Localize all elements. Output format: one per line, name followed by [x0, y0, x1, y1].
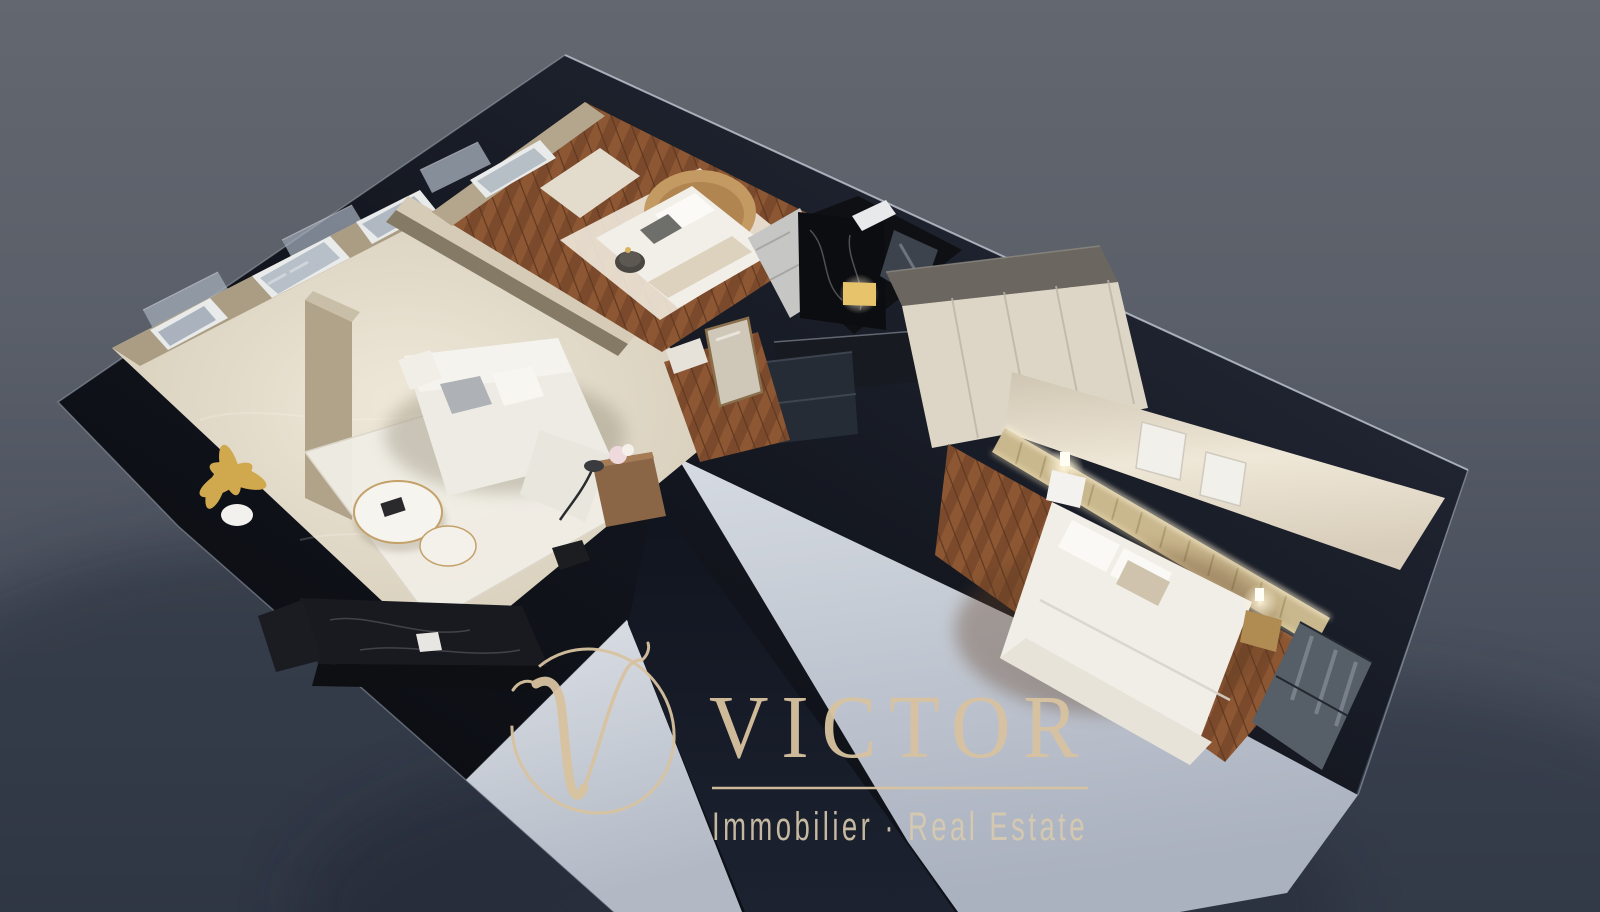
nightstand-left — [1044, 448, 1086, 508]
black-marble-wall — [798, 212, 886, 330]
brand-tagline: Immobilier · Real Estate — [712, 805, 1088, 849]
scene-canvas: VICTOR Immobilier · Real Estate — [0, 0, 1600, 912]
floorplan-render: VICTOR Immobilier · Real Estate — [0, 0, 1600, 912]
brand-wordmark: VICTOR — [709, 678, 1091, 777]
vanity-light — [843, 282, 876, 306]
